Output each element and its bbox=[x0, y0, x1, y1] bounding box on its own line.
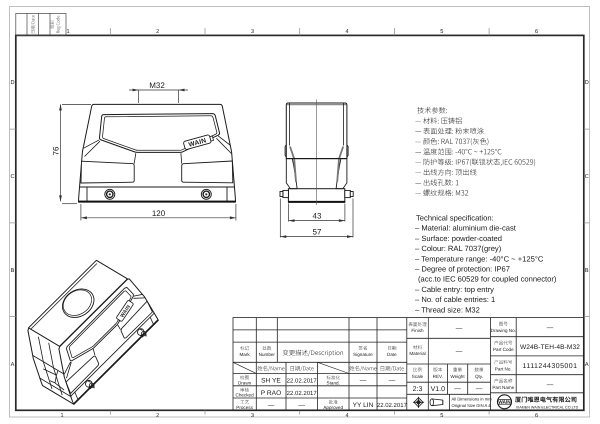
svg-text:Number: Number bbox=[259, 352, 276, 357]
svg-text:2:3: 2:3 bbox=[413, 386, 423, 393]
svg-text:C: C bbox=[10, 174, 14, 180]
svg-text:4: 4 bbox=[346, 413, 349, 419]
svg-text:Qty.: Qty. bbox=[475, 374, 483, 379]
svg-text:Material: Material bbox=[409, 351, 425, 356]
svg-text:– Cable entry: top entry: – Cable entry: top entry bbox=[415, 285, 494, 294]
svg-text:—: — bbox=[476, 385, 483, 392]
svg-text:1: 1 bbox=[60, 413, 63, 419]
svg-text:Stand.: Stand. bbox=[327, 381, 340, 386]
svg-text:5: 5 bbox=[440, 29, 443, 35]
svg-text:Process: Process bbox=[236, 405, 253, 410]
svg-text:Finish: Finish bbox=[411, 328, 424, 333]
svg-text:43: 43 bbox=[313, 212, 322, 221]
svg-text:(acc.to IEC 60529 for coup: (acc.to IEC 60529 for coupled connector) bbox=[418, 275, 557, 284]
svg-text:Part Code: Part Code bbox=[493, 347, 514, 352]
svg-text:5: 5 bbox=[440, 413, 443, 419]
svg-text:—: — bbox=[456, 348, 463, 355]
svg-text:All Dimensions in mm: All Dimensions in mm bbox=[452, 397, 493, 402]
svg-text:– Temperature range: -40°C: – Temperature range: -40°C ~ +125°C bbox=[415, 254, 544, 263]
svg-text:22.02.2017: 22.02.2017 bbox=[377, 402, 408, 409]
svg-text:22.02.2017: 22.02.2017 bbox=[287, 390, 318, 397]
svg-text:B: B bbox=[11, 268, 15, 274]
svg-text:—: — bbox=[454, 385, 461, 392]
svg-text:—: — bbox=[547, 382, 554, 389]
svg-text:W24B-TEH-4B-M32: W24B-TEH-4B-M32 bbox=[520, 344, 580, 351]
svg-text:B: B bbox=[585, 268, 589, 274]
svg-text:YY LIN: YY LIN bbox=[353, 402, 374, 409]
svg-text:76: 76 bbox=[52, 146, 61, 155]
svg-text:Weight: Weight bbox=[450, 374, 465, 379]
svg-text:Drawing No.: Drawing No. bbox=[491, 328, 516, 333]
svg-text:Checked: Checked bbox=[236, 393, 255, 398]
svg-text:XIAMEN WAIN ELECTRICAL CO.LTD: XIAMEN WAIN ELECTRICAL CO.LTD bbox=[516, 406, 579, 410]
svg-text:REV.: REV. bbox=[433, 374, 443, 379]
svg-text:P RAO: P RAO bbox=[261, 390, 281, 397]
svg-text:6: 6 bbox=[535, 29, 538, 35]
svg-text:120: 120 bbox=[152, 209, 166, 218]
svg-text:—: — bbox=[298, 402, 305, 409]
svg-text:1111244305001: 1111244305001 bbox=[523, 363, 578, 370]
svg-text:6: 6 bbox=[535, 413, 538, 419]
svg-text:Date: Date bbox=[387, 352, 397, 357]
svg-text:Part Name: Part Name bbox=[492, 385, 514, 390]
svg-text:D: D bbox=[585, 80, 589, 86]
svg-text:V1.0: V1.0 bbox=[431, 386, 446, 393]
svg-text:3: 3 bbox=[251, 413, 254, 419]
svg-text:SH YE: SH YE bbox=[261, 378, 281, 385]
svg-text:A: A bbox=[585, 362, 589, 368]
svg-text:– Colour: RAL 7037(grey): – Colour: RAL 7037(grey) bbox=[415, 244, 502, 253]
svg-text:1: 1 bbox=[66, 29, 69, 35]
svg-text:Part No.: Part No. bbox=[495, 366, 512, 371]
svg-text:Drawn: Drawn bbox=[238, 381, 252, 386]
svg-text:2: 2 bbox=[156, 413, 159, 419]
svg-text:Scale: Scale bbox=[412, 374, 424, 379]
svg-text:D: D bbox=[10, 80, 14, 86]
svg-text:WAIN: WAIN bbox=[498, 400, 511, 406]
svg-text:3: 3 bbox=[251, 29, 254, 35]
svg-text:A: A bbox=[11, 362, 15, 368]
svg-text:—: — bbox=[268, 402, 275, 409]
svg-text:2: 2 bbox=[156, 29, 159, 35]
svg-text:—: — bbox=[456, 325, 463, 332]
svg-text:– Surface: powder-coated: – Surface: powder-coated bbox=[415, 234, 502, 243]
svg-text:—: — bbox=[547, 325, 554, 332]
svg-text:– Degree of protection: IP: – Degree of protection: IP67 bbox=[415, 265, 510, 274]
svg-text:Technical specification:: Technical specification: bbox=[416, 214, 494, 223]
svg-text:Signature: Signature bbox=[353, 352, 373, 357]
svg-text:—: — bbox=[360, 377, 367, 384]
svg-text:– No. of cable entries: 1: – No. of cable entries: 1 bbox=[415, 295, 495, 304]
svg-text:Original Size DIN A 4: Original Size DIN A 4 bbox=[452, 403, 492, 408]
svg-text:—: — bbox=[389, 377, 396, 384]
svg-text:Mark: Mark bbox=[239, 352, 250, 357]
svg-text:22.02.2017: 22.02.2017 bbox=[287, 378, 318, 385]
svg-text:– Thread size: M32: – Thread size: M32 bbox=[415, 305, 480, 314]
svg-text:Approved: Approved bbox=[323, 405, 343, 410]
svg-text:4: 4 bbox=[346, 29, 349, 35]
svg-text:M32: M32 bbox=[149, 81, 165, 90]
svg-text:– Material: aluminium die-c: – Material: aluminium die-cast bbox=[415, 224, 517, 233]
svg-text:C: C bbox=[585, 174, 589, 180]
svg-text:57: 57 bbox=[313, 228, 322, 237]
